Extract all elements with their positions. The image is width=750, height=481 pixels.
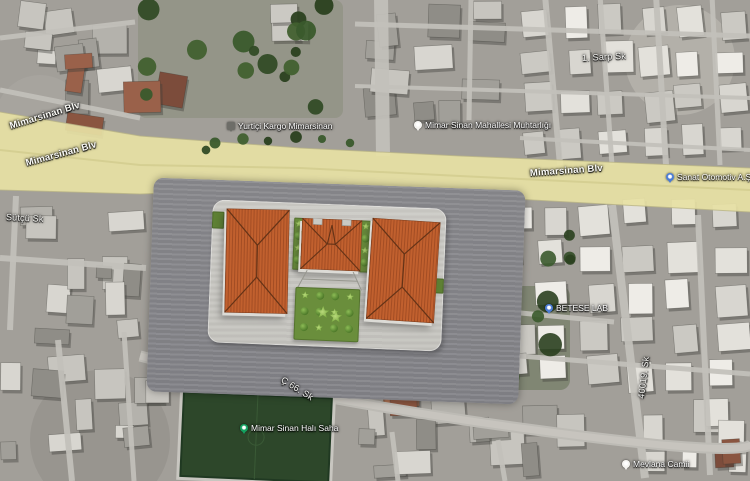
building-right-roof — [366, 218, 441, 323]
tree-icon — [362, 222, 370, 230]
tree-icon — [345, 325, 353, 333]
tree-icon — [315, 324, 323, 332]
courtyard-garden — [293, 287, 360, 343]
plaza-green-strip-left — [212, 211, 225, 228]
tree-icon — [301, 291, 309, 299]
tree-icon — [329, 310, 343, 324]
site-plan-overlay — [150, 184, 522, 398]
tree-icon — [345, 309, 353, 317]
tree-icon — [300, 307, 308, 315]
poi-yurtici-kargo[interactable]: Yurtiçi Kargo Mimarsinan — [227, 121, 332, 131]
building-center-roof — [300, 218, 362, 271]
tree-icon — [331, 292, 339, 300]
poi-sanat-otomotiv[interactable]: Sanat Otomotiv A.Ş. — [666, 172, 750, 182]
road-label-sutcu-sk: Sütçü Sk — [6, 212, 44, 224]
poi-hali-saha[interactable]: Mimar Sinan Halı Saha — [240, 423, 338, 433]
tree-icon — [300, 323, 308, 331]
poi-label: Yurtiçi Kargo Mimarsinan — [238, 121, 332, 131]
poi-label: BETESE LAB — [556, 303, 608, 313]
tree-icon — [316, 292, 324, 300]
poi-label: Sanat Otomotiv A.Ş. — [677, 172, 750, 182]
tree-icon — [361, 234, 369, 242]
tree-icon — [361, 246, 369, 254]
poi-label: Mimar Sinan Mahallesi Muhtarlığı — [425, 120, 551, 130]
map-pin-icon — [666, 173, 674, 181]
tree-icon — [360, 258, 368, 266]
map-pin-icon — [622, 460, 630, 468]
siteplan-plaza — [207, 199, 447, 351]
map-pin-icon — [545, 304, 553, 312]
tree-icon — [330, 324, 338, 332]
building-left-roof — [224, 208, 289, 313]
satellite-map-viewport[interactable]: Mimarsinan Blv Mimarsinan Blv Mimarsinan… — [0, 0, 750, 481]
poi-betese-lab[interactable]: BETESE LAB — [545, 303, 608, 313]
map-pin-icon — [414, 121, 422, 129]
poi-label: Mimar Sinan Halı Saha — [251, 423, 338, 433]
map-pin-icon — [240, 424, 248, 432]
poi-muhtarlik[interactable]: Mimar Sinan Mahallesi Muhtarlığı — [414, 120, 551, 130]
poi-label: Mevlana Camii — [633, 459, 689, 469]
tree-icon — [346, 293, 354, 301]
poi-mevlana-camii[interactable]: Mevlana Camii — [622, 459, 689, 469]
cargo-office-icon — [227, 122, 235, 130]
